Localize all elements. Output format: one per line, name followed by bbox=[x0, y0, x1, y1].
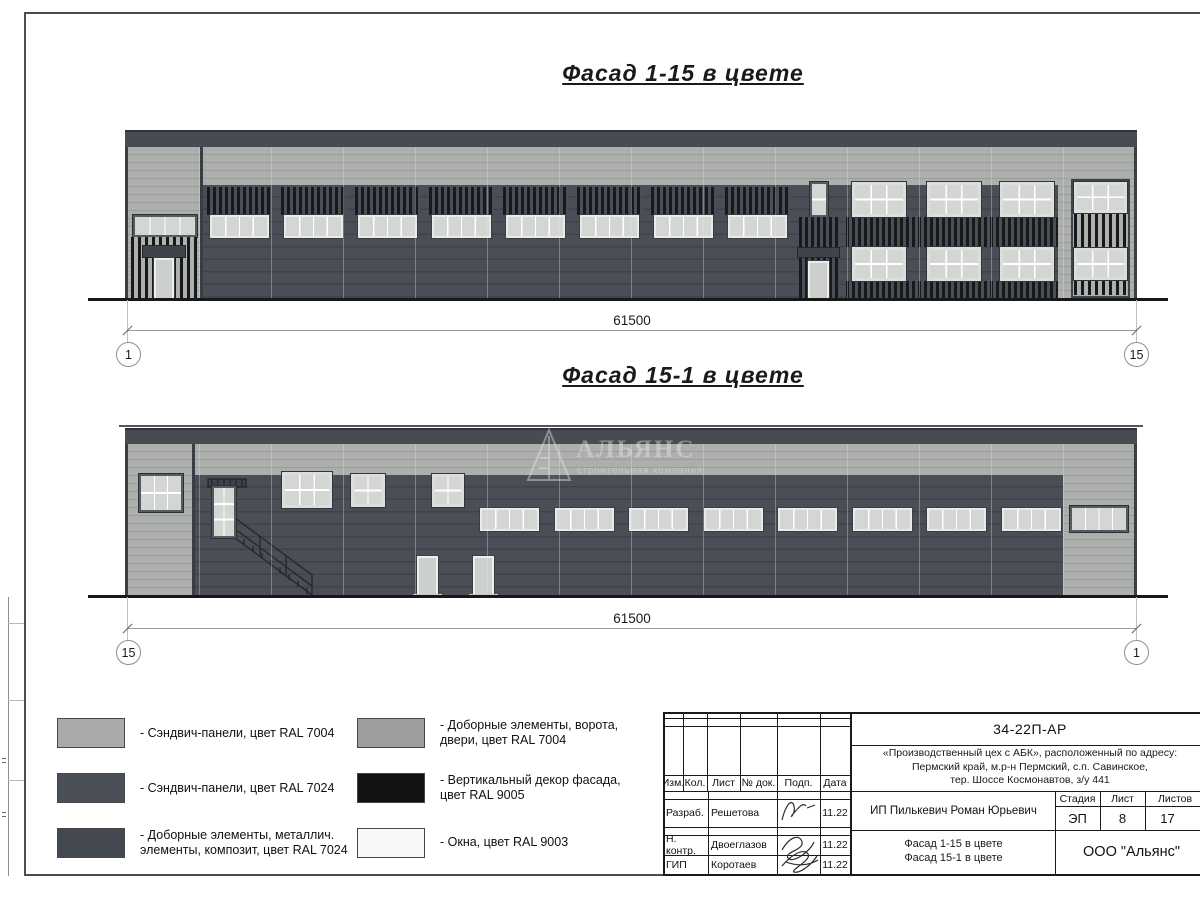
sheets-label: Листов bbox=[1145, 791, 1200, 806]
facade1-drawing bbox=[125, 130, 1137, 300]
dimension-line bbox=[127, 330, 1137, 331]
tb-name: Коротаев bbox=[708, 855, 777, 874]
stage-value: ЭП bbox=[1055, 806, 1100, 830]
legend-swatch bbox=[57, 828, 125, 858]
corner-trim bbox=[1134, 147, 1137, 300]
margin-mark bbox=[2, 812, 6, 813]
legend-swatch bbox=[57, 773, 125, 803]
project-description: «Производственный цех с АБК», расположен… bbox=[852, 747, 1200, 791]
tb-col-podp: Подп. bbox=[777, 775, 820, 791]
tb-col-doc: № док. bbox=[740, 775, 777, 791]
legend-label: - Окна, цвет RAL 9003 bbox=[440, 835, 568, 850]
corner-trim bbox=[1134, 444, 1137, 597]
legend-label: - Доборные элементы, ворота,двери, цвет … bbox=[440, 718, 618, 748]
legend-swatch bbox=[357, 718, 425, 748]
tb-col-data: Дата bbox=[820, 775, 850, 791]
margin-divider bbox=[8, 780, 24, 781]
tb-date: 11.22 bbox=[820, 799, 850, 827]
alyans-logo-icon bbox=[526, 428, 572, 482]
tb-name: Двоеглазов bbox=[708, 835, 777, 855]
axis-bubble: 15 bbox=[1124, 342, 1149, 367]
sheet-label: Лист bbox=[1100, 791, 1145, 806]
titleblock-border bbox=[663, 874, 1200, 876]
tb-date: 11.22 bbox=[820, 835, 850, 855]
dimension-value: 61500 bbox=[572, 611, 692, 626]
tb-name: Решетова bbox=[708, 799, 777, 827]
frame-top bbox=[24, 12, 1200, 14]
tb-role: ГИП bbox=[663, 855, 708, 874]
axis-bubble: 15 bbox=[116, 640, 141, 665]
tb-col-list: Лист bbox=[707, 775, 740, 791]
stage-label: Стадия bbox=[1055, 791, 1100, 806]
legend-swatch bbox=[357, 773, 425, 803]
company-name: ООО "Альянс" bbox=[1055, 830, 1200, 874]
roof-overhang bbox=[119, 425, 1143, 427]
legend-label: - Сэндвич-панели, цвет RAL 7024 bbox=[140, 781, 334, 796]
legend-swatch bbox=[57, 718, 125, 748]
margin-divider bbox=[8, 700, 24, 701]
ground-line bbox=[88, 298, 1168, 301]
sheets-total: 17 bbox=[1145, 806, 1190, 830]
legend-label: - Вертикальный декор фасада,цвет RAL 900… bbox=[440, 773, 621, 803]
signature bbox=[778, 832, 820, 874]
witness-line bbox=[1136, 300, 1137, 346]
client-name: ИП Пилькевич Роман Юрьевич bbox=[852, 791, 1055, 830]
dimension-line bbox=[127, 628, 1137, 629]
legend-swatch bbox=[357, 828, 425, 858]
facade2-title: Фасад 15-1 в цвете bbox=[458, 362, 908, 389]
roof-band bbox=[125, 130, 1137, 147]
frame-left bbox=[24, 12, 26, 876]
drawing-sheet: Фасад 1-15 в цвете bbox=[0, 0, 1200, 900]
facade1-title: Фасад 1-15 в цвете bbox=[458, 60, 908, 87]
margin-line bbox=[8, 597, 9, 876]
watermark: АЛЬЯНС строительная компания bbox=[526, 428, 706, 484]
tb-role: Н. контр. bbox=[663, 835, 708, 855]
tb-line bbox=[663, 718, 850, 719]
tb-line bbox=[663, 726, 850, 727]
tb-role: Разраб. bbox=[663, 799, 708, 827]
axis-bubble: 1 bbox=[116, 342, 141, 367]
dimension-value: 61500 bbox=[572, 313, 692, 328]
margin-mark bbox=[2, 758, 6, 759]
tb-col-izm: Изм. bbox=[663, 775, 683, 791]
legend-label: - Сэндвич-панели, цвет RAL 7004 bbox=[140, 726, 334, 741]
axis-bubble: 1 bbox=[1124, 640, 1149, 665]
margin-mark bbox=[2, 816, 6, 817]
witness-line bbox=[1136, 597, 1137, 643]
ground-line bbox=[88, 595, 1168, 598]
margin-mark bbox=[2, 762, 6, 763]
signature bbox=[779, 794, 819, 826]
margin-divider bbox=[8, 623, 24, 624]
witness-line bbox=[127, 597, 128, 643]
legend-label: - Доборные элементы, металлич.элементы, … bbox=[140, 828, 348, 858]
doc-number: 34-22П-АР bbox=[852, 712, 1200, 745]
tb-line bbox=[850, 745, 1200, 746]
watermark-name: АЛЬЯНС bbox=[576, 436, 695, 464]
panel-joints bbox=[128, 147, 1134, 300]
tb-line bbox=[663, 827, 850, 828]
tb-date: 11.22 bbox=[820, 855, 850, 874]
sheet-number: 8 bbox=[1100, 806, 1145, 830]
tb-col-kol: Кол. bbox=[683, 775, 707, 791]
witness-line bbox=[127, 300, 128, 346]
sheet-title: Фасад 1-15 в цвете Фасад 15-1 в цвете bbox=[852, 837, 1055, 871]
watermark-tagline: строительная компания bbox=[577, 465, 703, 476]
